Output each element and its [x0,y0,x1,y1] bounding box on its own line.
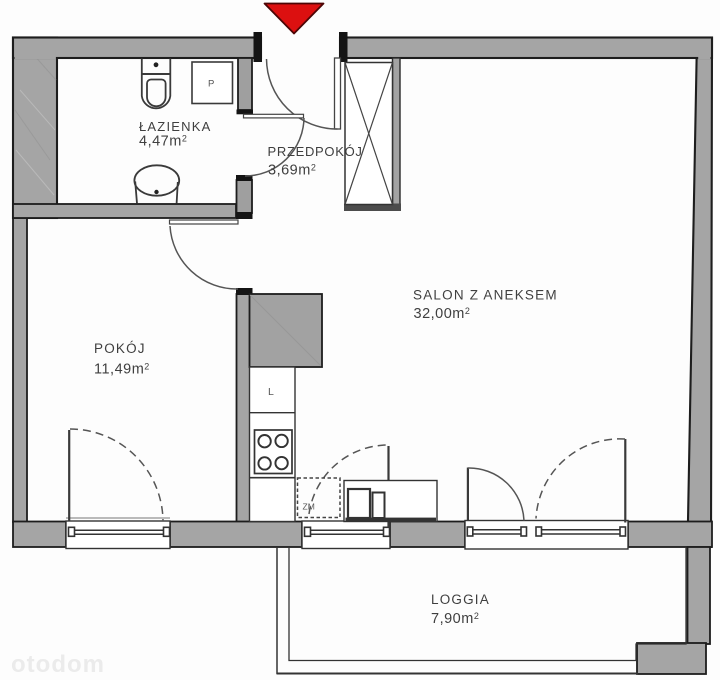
svg-text:3,69m2: 3,69m2 [268,163,316,179]
svg-text:P: P [208,79,214,90]
svg-text:POKÓJ: POKÓJ [94,341,146,356]
svg-text:otodom: otodom [11,651,105,678]
svg-text:L: L [268,386,274,398]
svg-text:ŁAZIENKA: ŁAZIENKA [139,119,211,134]
svg-text:LOGGIA: LOGGIA [431,592,490,607]
svg-text:32,00m2: 32,00m2 [414,306,471,322]
svg-text:7,90m2: 7,90m2 [431,611,479,627]
svg-text:PRZEDPOKÓJ: PRZEDPOKÓJ [268,144,363,159]
svg-text:4,47m2: 4,47m2 [139,134,187,150]
svg-text:SALON Z ANEKSEM: SALON Z ANEKSEM [413,288,558,303]
svg-text:11,49m2: 11,49m2 [94,362,150,378]
svg-text:ZM: ZM [303,502,315,512]
